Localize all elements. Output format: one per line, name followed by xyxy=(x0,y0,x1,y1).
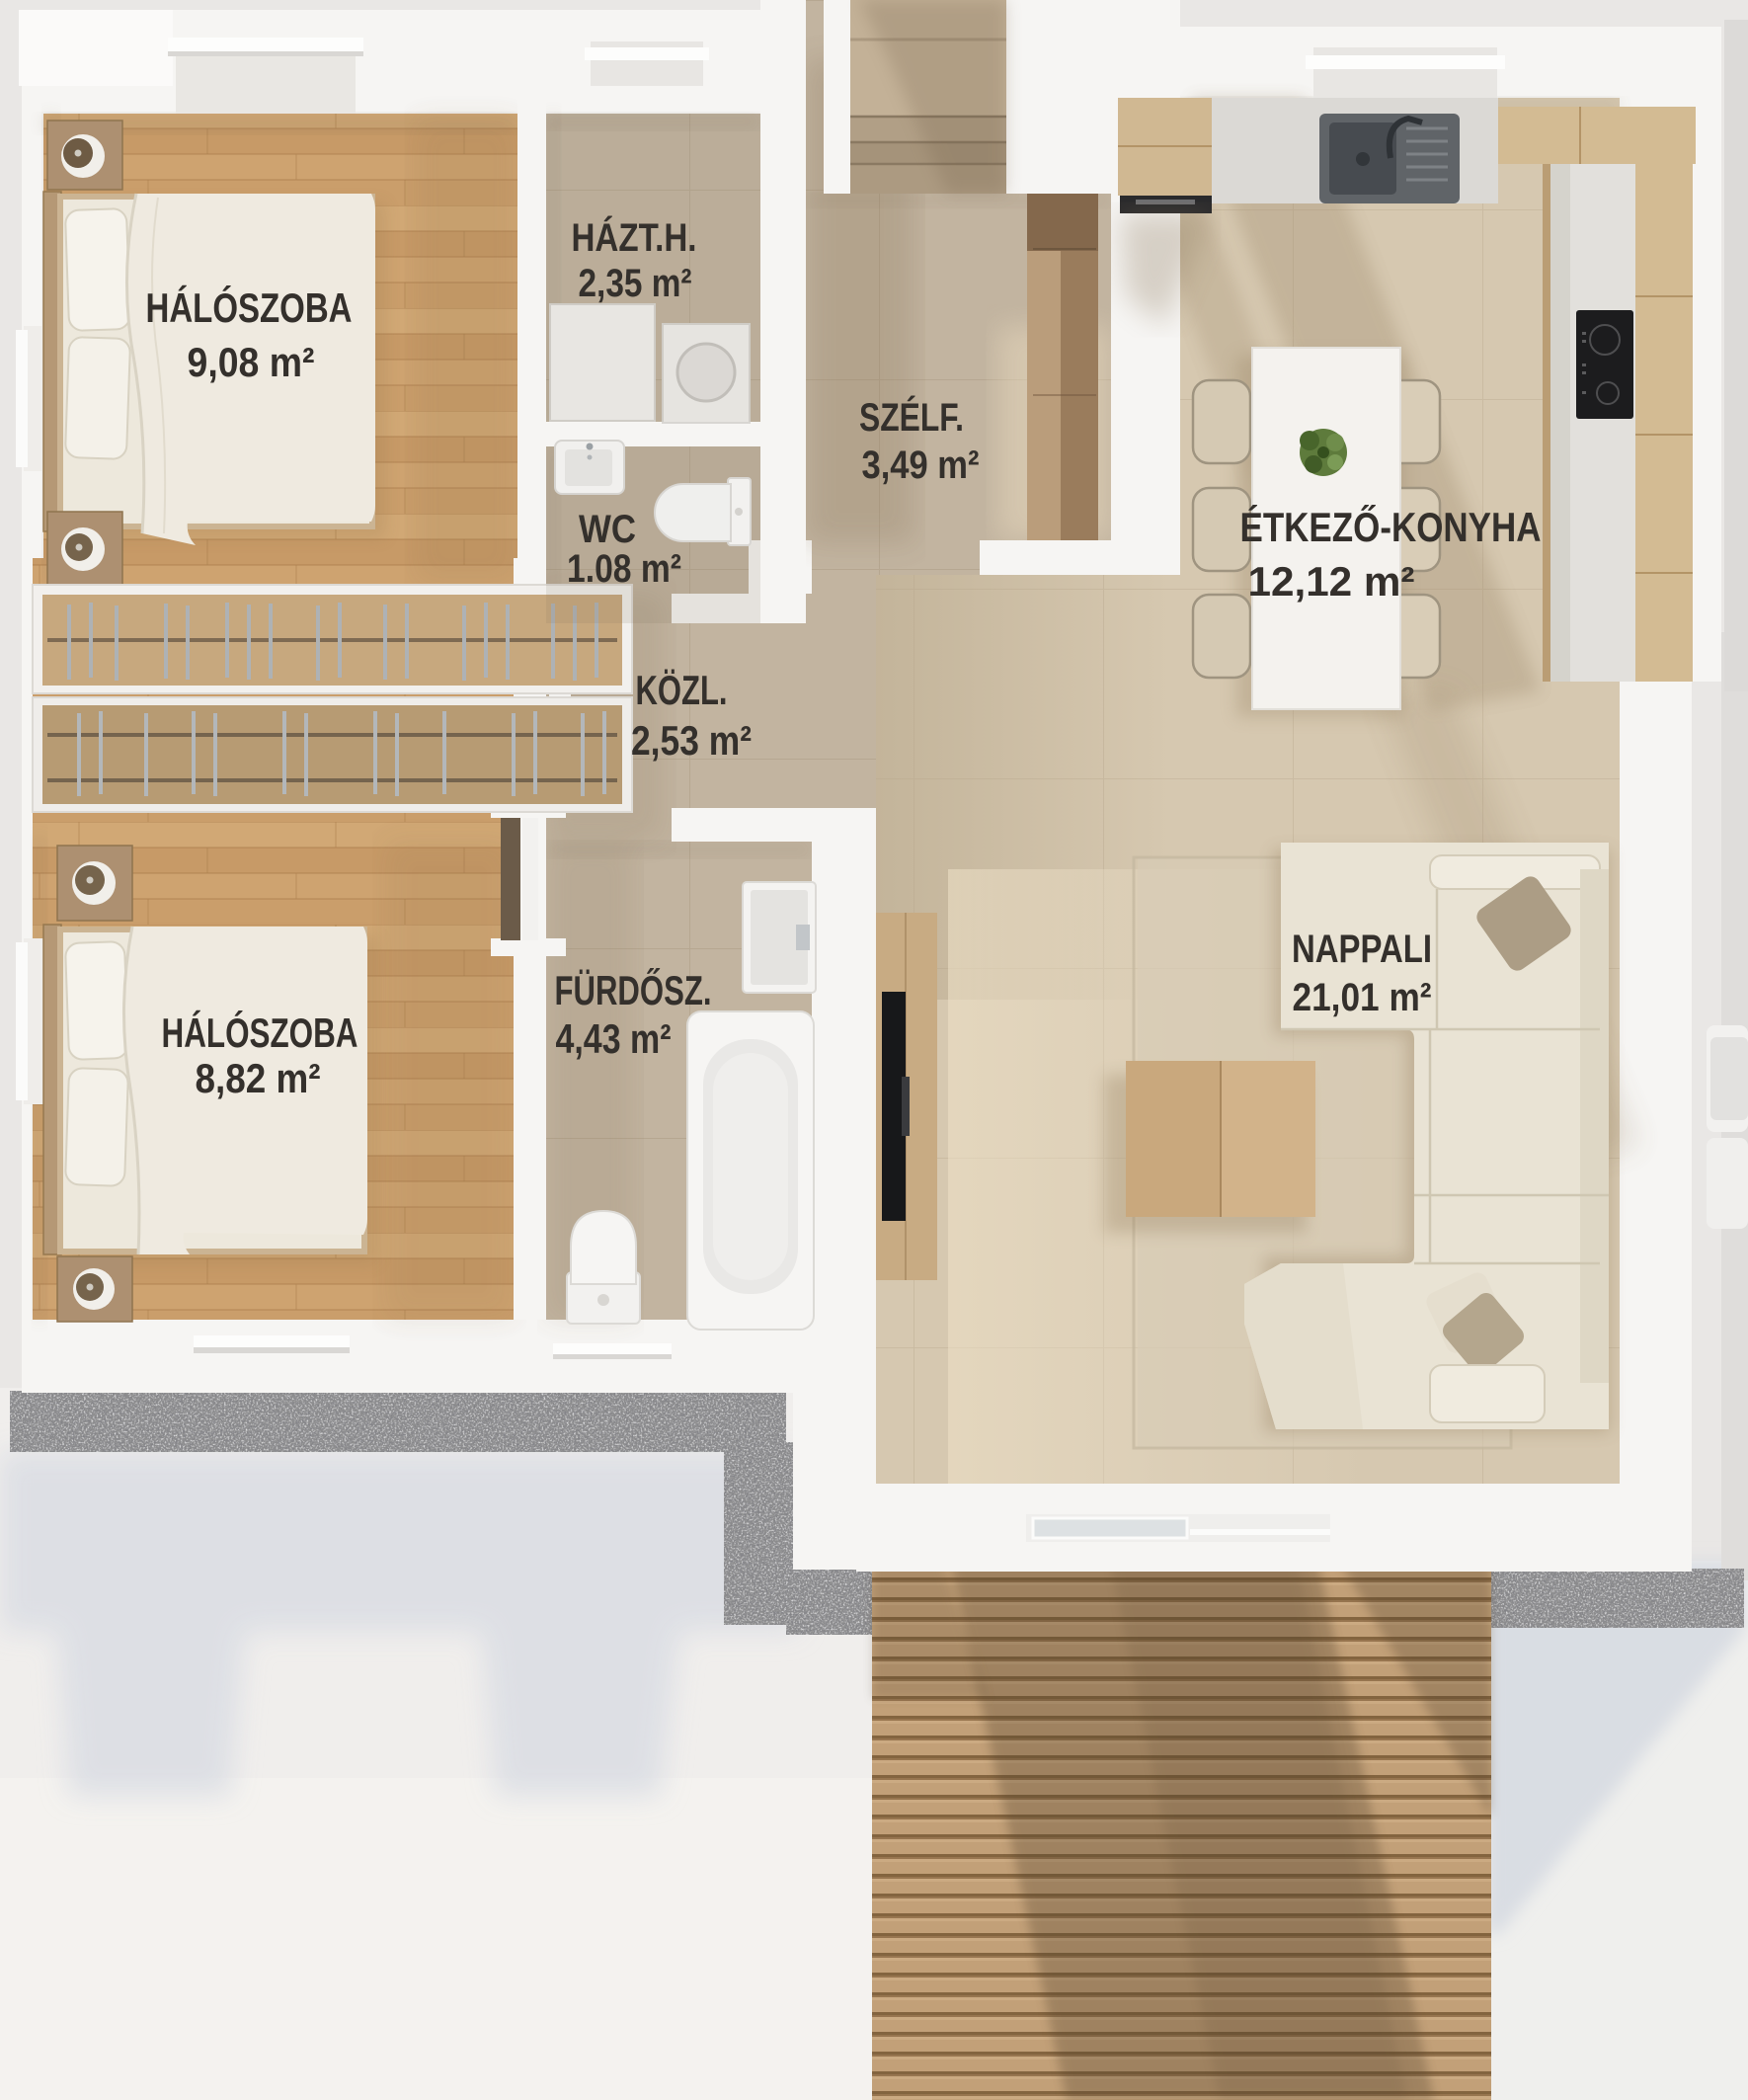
svg-text:HÁLÓSZOBA: HÁLÓSZOBA xyxy=(162,1009,358,1056)
svg-text:8,82 m²: 8,82 m² xyxy=(196,1055,321,1101)
svg-text:HÁZT.H.: HÁZT.H. xyxy=(572,215,697,260)
svg-text:WC: WC xyxy=(579,508,636,551)
svg-text:2,53 m²: 2,53 m² xyxy=(631,717,752,764)
svg-text:NAPPALI: NAPPALI xyxy=(1292,928,1432,971)
svg-text:9,08 m²: 9,08 m² xyxy=(188,339,315,385)
svg-text:3,49 m²: 3,49 m² xyxy=(862,444,980,487)
svg-text:4,43 m²: 4,43 m² xyxy=(556,1015,672,1062)
svg-text:HÁLÓSZOBA: HÁLÓSZOBA xyxy=(146,283,353,331)
svg-text:FÜRDŐSZ.: FÜRDŐSZ. xyxy=(555,967,712,1013)
svg-text:ÉTKEZŐ-KONYHA: ÉTKEZŐ-KONYHA xyxy=(1240,504,1542,550)
svg-text:KÖZL.: KÖZL. xyxy=(636,667,728,713)
svg-text:12,12 m²: 12,12 m² xyxy=(1248,558,1415,605)
svg-text:SZÉLF.: SZÉLF. xyxy=(859,395,964,440)
svg-text:21,01 m²: 21,01 m² xyxy=(1293,976,1432,1019)
svg-text:2,35 m²: 2,35 m² xyxy=(579,262,692,305)
svg-text:1.08 m²: 1.08 m² xyxy=(567,547,681,591)
